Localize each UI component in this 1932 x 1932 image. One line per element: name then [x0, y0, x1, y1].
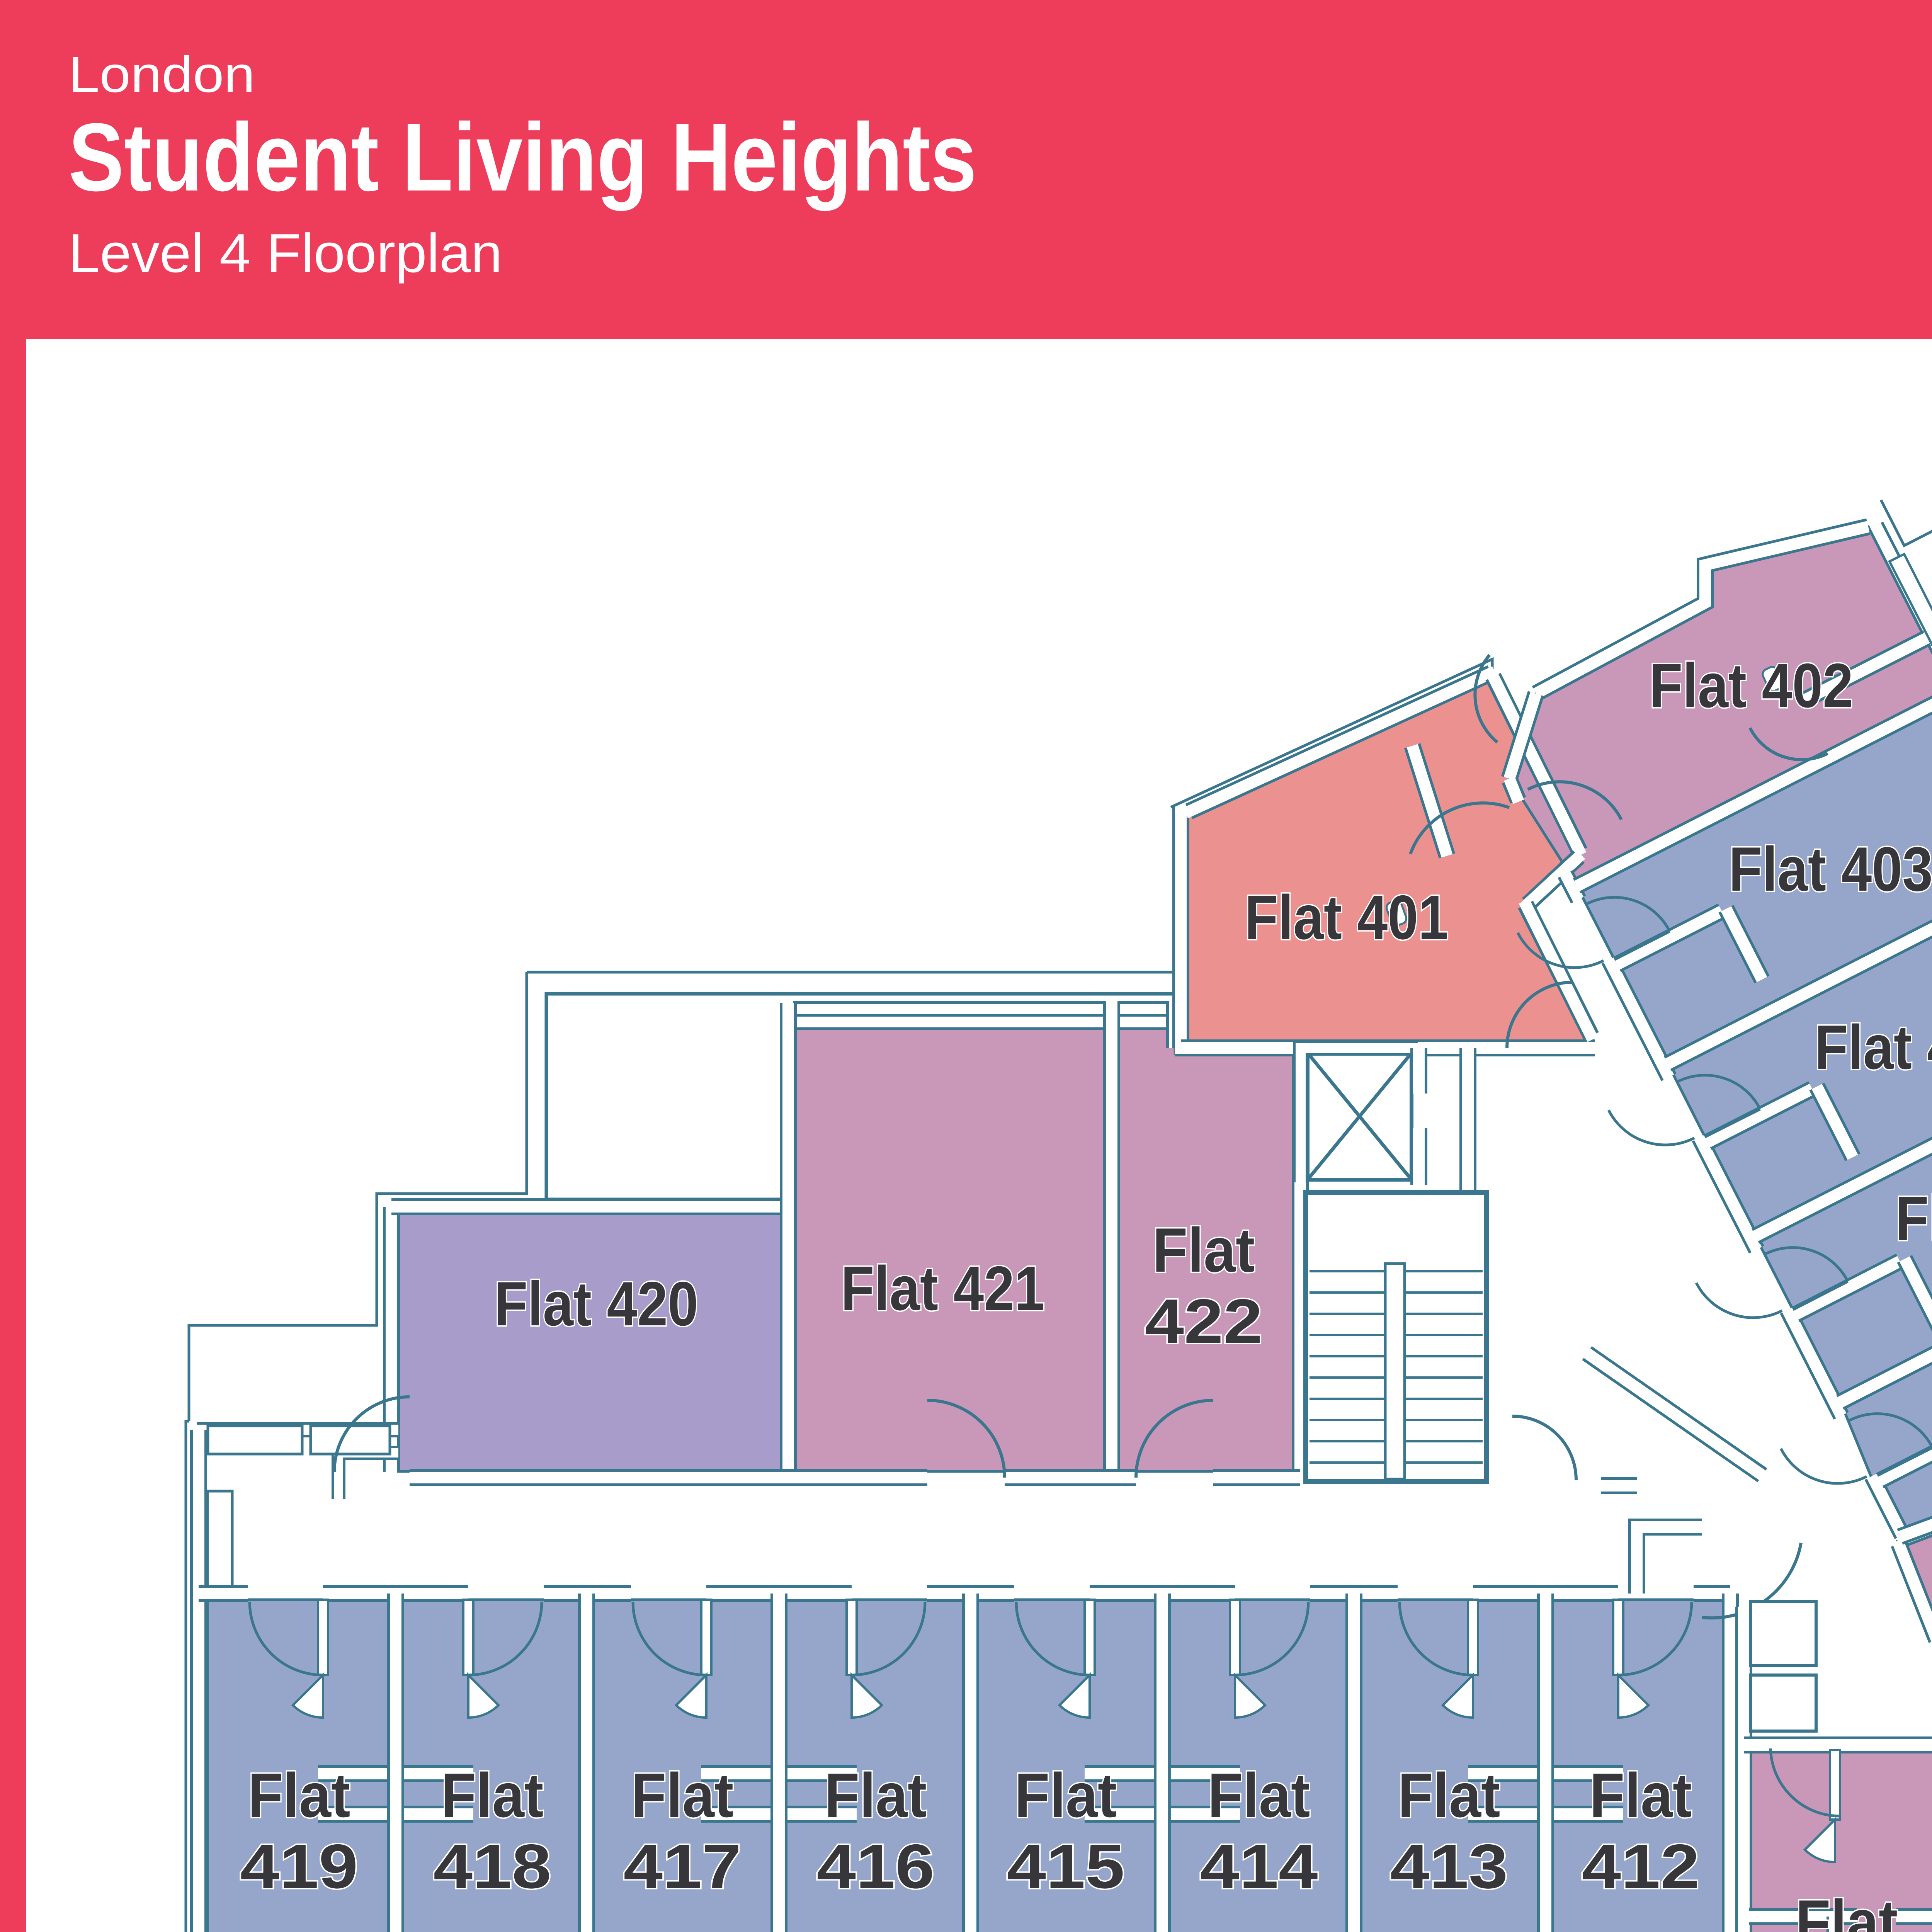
svg-text:Student Living Heights: Student Living Heights — [68, 103, 977, 211]
svg-text:Flat: Flat — [1590, 1760, 1692, 1830]
svg-text:Flat: Flat — [631, 1760, 734, 1830]
svg-text:412: 412 — [1582, 1832, 1700, 1901]
svg-text:Flat: Flat — [1208, 1760, 1310, 1830]
svg-text:Flat: Flat — [248, 1760, 350, 1830]
svg-text:Flat 405: Flat 405 — [1895, 1184, 1932, 1253]
svg-text:Flat 401: Flat 401 — [1245, 883, 1449, 952]
svg-text:414: 414 — [1200, 1832, 1318, 1901]
svg-text:419: 419 — [240, 1832, 358, 1901]
svg-text:Flat 404: Flat 404 — [1815, 1012, 1932, 1082]
svg-text:415: 415 — [1007, 1832, 1125, 1901]
svg-text:Flat 403: Flat 403 — [1729, 834, 1932, 904]
svg-text:Flat: Flat — [1796, 1887, 1898, 1932]
svg-text:London: London — [68, 46, 255, 103]
svg-text:Flat 402: Flat 402 — [1649, 651, 1853, 721]
svg-text:Flat: Flat — [825, 1760, 927, 1830]
svg-text:Flat: Flat — [441, 1760, 544, 1830]
svg-text:Flat: Flat — [1015, 1760, 1117, 1830]
svg-text:413: 413 — [1390, 1832, 1508, 1901]
svg-text:422: 422 — [1145, 1286, 1263, 1356]
svg-text:416: 416 — [817, 1832, 935, 1901]
svg-text:418: 418 — [434, 1832, 551, 1901]
svg-text:Flat 420: Flat 420 — [494, 1269, 698, 1339]
svg-text:417: 417 — [624, 1832, 742, 1901]
svg-text:Flat: Flat — [1153, 1215, 1255, 1285]
svg-text:Flat: Flat — [1398, 1760, 1500, 1830]
svg-text:Flat 421: Flat 421 — [841, 1253, 1045, 1323]
svg-text:Level 4 Floorplan: Level 4 Floorplan — [68, 223, 502, 284]
